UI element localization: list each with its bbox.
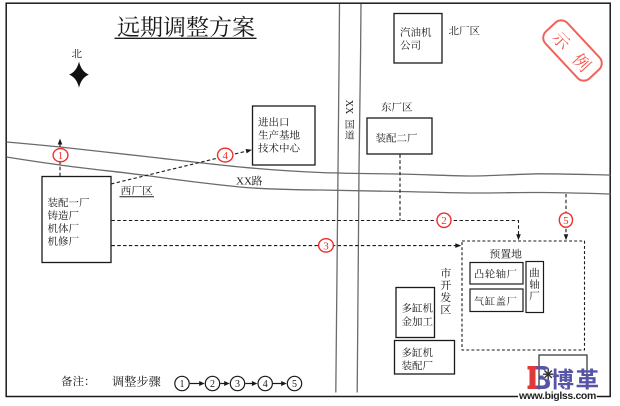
svg-text:1: 1 [180,379,185,390]
svg-text:5: 5 [292,379,297,390]
svg-text:4: 4 [263,379,268,390]
svg-text:www.biglss.com: www.biglss.com [518,390,596,402]
svg-text:3: 3 [235,379,240,390]
svg-text:3: 3 [323,240,329,252]
svg-text:XX: XX [236,176,252,188]
svg-text:5: 5 [563,215,569,227]
svg-text:4: 4 [222,150,228,162]
svg-text:2: 2 [210,379,215,390]
svg-text:2: 2 [441,215,447,227]
svg-text:1: 1 [58,150,64,162]
svg-text:XX: XX [343,100,354,115]
